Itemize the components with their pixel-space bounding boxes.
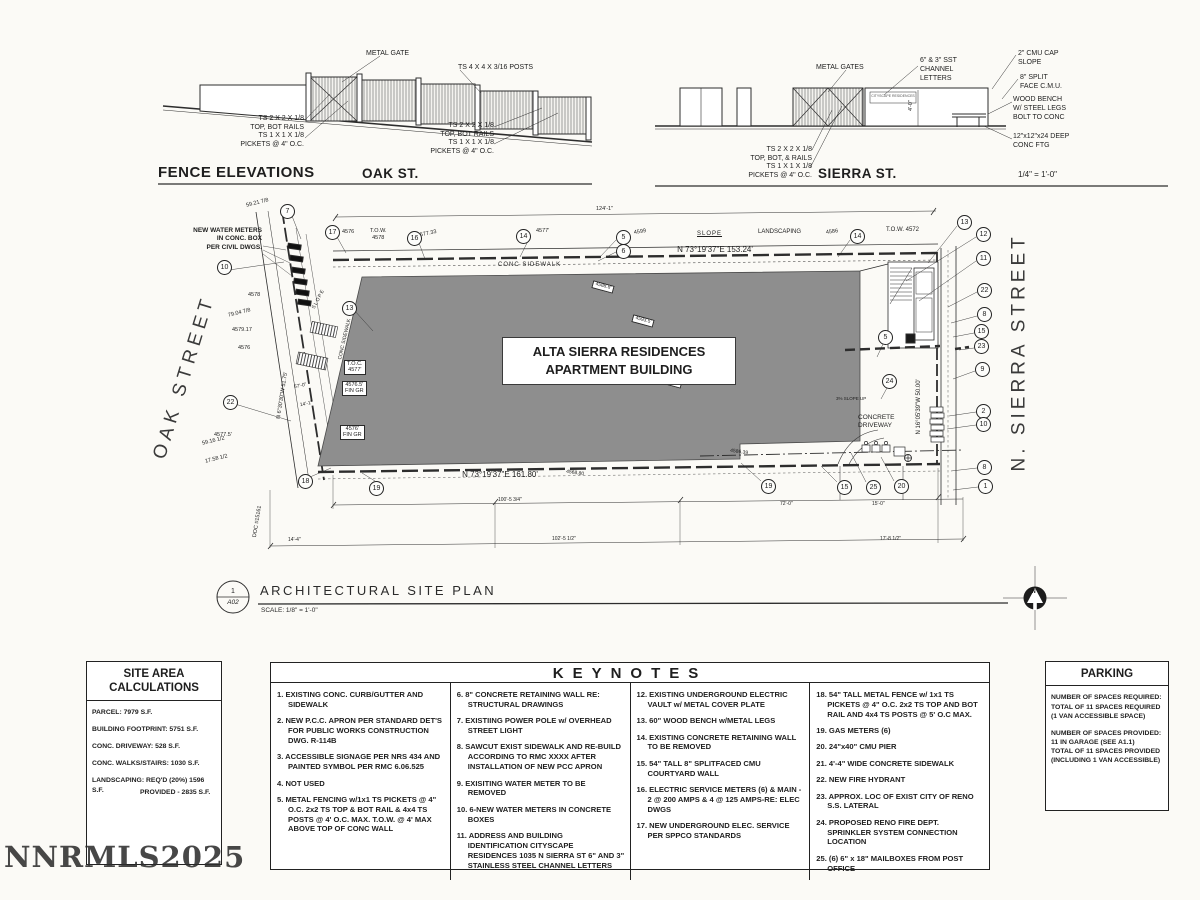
keynote-item: 7. EXISTIING POWER POLE w/ OVERHEAD STRE… (457, 716, 625, 736)
oak-rails-left-label: TS 2 X 2 X 1/8 TOP, BOT RAILS (222, 114, 304, 132)
north-letter: N (1032, 589, 1036, 596)
keynote-item: 6. 8" CONCRETE RETAINING WALL RE: STRUCT… (457, 690, 625, 710)
keynote-item: 5. METAL FENCING w/1x1 TS PICKETS @ 4" O… (277, 795, 445, 834)
keynote-item: 3. ACCESSIBLE SIGNAGE PER NRS 434 AND PA… (277, 752, 445, 772)
keynote-bubble: 16 (407, 231, 422, 246)
parking-title: PARKING (1046, 662, 1168, 686)
water-meters-note: NEW WATER METERS IN CONC. BOX PER CIVIL … (166, 227, 262, 252)
keynote-item: 18. 54" TALL METAL FENCE w/ 1x1 TS PICKE… (816, 690, 984, 720)
keynote-bubble: 12 (976, 227, 991, 242)
keynote-item: 16. ELECTRIC SERVICE METERS (6) & MAIN -… (637, 785, 805, 815)
keynote-item: 11. ADDRESS AND BUILDING IDENTIFICATION … (457, 831, 625, 870)
parking-required: NUMBER OF SPACES REQUIRED: TOTAL OF 11 S… (1051, 693, 1163, 721)
toc-box: T.O.C. 4577' (344, 360, 366, 375)
bearing-top: N 73°19'37"E 153.24' (650, 245, 780, 255)
dim-72: 72'-0" (780, 501, 793, 508)
site-area-parcel: PARCEL: 7979 S.F. (92, 708, 216, 717)
keynote-item: 2. NEW P.C.C. APRON PER STANDARD DET'S F… (277, 716, 445, 746)
keynotes-column-3: 12. EXISTING UNDERGROUND ELECTRIC VAULT … (631, 683, 811, 880)
keynote-item: 17. NEW UNDERGROUND ELEC. SERVICE PER SP… (637, 821, 805, 841)
keynote-bubble: 1 (978, 479, 993, 494)
oak-pickets-left-label: TS 1 X 1 X 1/8 PICKETS @ 4" O.C. (212, 131, 304, 149)
keynote-bubble: 15 (837, 480, 852, 495)
sheet-reference: A02 (222, 599, 244, 607)
elev-457917: 4579.17 (232, 327, 252, 334)
sierra-metal-gates-label: METAL GATES (816, 63, 864, 72)
elev-4578: 4578 (248, 292, 260, 299)
keynote-item: 15. 54" TALL 8" SPLITFACED CMU COURTYARD… (637, 759, 805, 779)
keynotes-column-2: 6. 8" CONCRETE RETAINING WALL RE: STRUCT… (451, 683, 631, 880)
sierra-channel-letters-label: 6" & 3" SST CHANNEL LETTERS (920, 56, 957, 83)
dim-100: 100'-5 3/4" (498, 497, 522, 504)
keynote-item: 20. 24"x40" CMU PIER (816, 742, 984, 752)
keynote-bubble: 7 (280, 204, 295, 219)
oak-posts-label: TS 4 X 4 X 3/16 POSTS (458, 63, 533, 72)
keynote-item: 21. 4'-4" WIDE CONCRETE SIDEWALK (816, 759, 984, 769)
keynote-item: 23. APPROX. LOC OF EXIST CITY OF RENO S.… (816, 792, 984, 812)
keynote-bubble: 14 (516, 229, 531, 244)
drawing-sheet: METAL GATE TS 4 X 4 X 3/16 POSTS TS 2 X … (0, 0, 1200, 900)
keynote-bubble: 5 (616, 230, 631, 245)
keynote-item: 1. EXISTING CONC. CURB/GUTTER AND SIDEWA… (277, 690, 445, 710)
slope-up-label: 3% SLOPE UP (836, 396, 866, 402)
keynote-bubble: 22 (977, 283, 992, 298)
detail-number: 1 (226, 587, 240, 596)
site-area-footprint: BUILDING FOOTPRINT: 5751 S.F. (92, 725, 216, 734)
sierra-footing-label: 12"x12"x24 DEEP CONC FTG (1013, 132, 1069, 150)
mls-watermark: NNRMLS2025 (4, 840, 245, 874)
sierra-cmu-cap-label: 2" CMU CAP SLOPE (1018, 49, 1059, 67)
keynote-bubble: 14 (850, 229, 865, 244)
keynote-item: 13. 60" WOOD BENCH w/METAL LEGS (637, 716, 805, 726)
building-type: APARTMENT BUILDING (505, 361, 733, 379)
site-plan-title: ARCHITECTURAL SITE PLAN (260, 583, 496, 598)
dim-15: 15'-0" (872, 501, 885, 508)
elev-4577: 4577' (536, 228, 549, 235)
dim-102: 102'-5 1/2" (552, 536, 576, 543)
keynote-item: 25. (6) 6" x 18" MAILBOXES FROM POST OFF… (816, 854, 984, 874)
landscaping-label: LANDSCAPING (758, 229, 801, 237)
keynote-bubble: 10 (217, 260, 232, 275)
keynote-item: 24. PROPOSED RENO FIRE DEPT. SPRINKLER S… (816, 818, 984, 848)
fin-gr-box-2: 4576' FIN GR (340, 425, 365, 440)
keynote-item: 4. NOT USED (277, 779, 445, 789)
parking-provided: NUMBER OF SPACES PROVIDED: 11 IN GARAGE … (1051, 729, 1163, 766)
conc-sidewalk-label: CONC SIDEWALK (498, 262, 561, 270)
keynote-bubble: 8 (977, 460, 992, 475)
parking-panel: PARKING NUMBER OF SPACES REQUIRED: TOTAL… (1045, 661, 1169, 811)
sierra-split-face-label: 8" SPLIT FACE C.M.U. (1020, 73, 1062, 91)
sierra-sign-text: CITYSCAPE RESIDENCES (869, 94, 917, 99)
keynote-bubble: 13 (957, 215, 972, 230)
dim-17: 17'-8 1/2" (880, 536, 901, 543)
keynote-bubble: 19 (369, 481, 384, 496)
tow-left: T.O.W. 4578 (370, 228, 387, 242)
dim-124: 124'-1" (596, 206, 613, 213)
elev-4576b: 4576 (238, 345, 250, 352)
slope-top-label: SLOPE (697, 231, 722, 239)
keynotes-column-4: 18. 54" TALL METAL FENCE w/ 1x1 TS PICKE… (810, 683, 989, 880)
keynote-bubble: 9 (975, 362, 990, 377)
sierra-rails-label: TS 2 X 2 X 1/8 TOP, BOT, & RAILS (728, 145, 812, 163)
keynote-item: 8. SAWCUT EXIST SIDEWALK AND RE-BUILD AC… (457, 742, 625, 772)
elev-45775: 4577.5' (214, 432, 232, 439)
bearing-right: N 16°05'39"W 50.00' (916, 349, 924, 465)
elev-4576a: 4576 (342, 229, 354, 236)
keynote-bubble: 18 (298, 474, 313, 489)
oak-metal-gate-label: METAL GATE (366, 49, 409, 58)
north-arrow-icon (1003, 566, 1067, 630)
keynote-bubble: 17 (325, 225, 340, 240)
oak-street-title: OAK ST. (362, 166, 419, 181)
sierra-street-name: N. SIERRA STREET (1008, 222, 1033, 482)
fin-gr-box-1: 4576.5' FIN GR (342, 381, 367, 396)
dim-14b: 14'-4" (288, 537, 301, 544)
sierra-bench-label: WOOD BENCH W/ STEEL LEGS BOLT TO CONC (1013, 95, 1066, 122)
keynote-bubble: 19 (761, 479, 776, 494)
keynote-bubble: 25 (866, 480, 881, 495)
site-area-calculations-panel: SITE AREA CALCULATIONS PARCEL: 7979 S.F.… (86, 661, 222, 865)
keynote-bubble: 20 (894, 479, 909, 494)
keynotes-panel: KEYNOTES 1. EXISTING CONC. CURB/GUTTER A… (270, 662, 990, 870)
sierra-height-dim: 4'-0" (908, 100, 915, 111)
bearing-bottom: N 73°19'37"E 161.80' (420, 470, 580, 480)
keynote-bubble: 23 (974, 339, 989, 354)
building-name: ALTA SIERRA RESIDENCES (505, 343, 733, 361)
site-area-title: SITE AREA CALCULATIONS (87, 662, 221, 701)
site-area-walks: CONC. WALKS/STAIRS: 1030 S.F. (92, 759, 216, 768)
keynote-item: 10. 6-NEW WATER METERS IN CONCRETE BOXES (457, 805, 625, 825)
keynote-item: 9. EXISITING WATER METER TO BE REMOVED (457, 779, 625, 799)
mailboxes (930, 407, 944, 442)
keynote-item: 22. NEW FIRE HYDRANT (816, 775, 984, 785)
keynote-bubble: 11 (976, 251, 991, 266)
keynote-bubble: 22 (223, 395, 238, 410)
keynotes-title: KEYNOTES (271, 663, 989, 683)
keynote-item: 14. EXISTING CONCRETE RETAINING WALL TO … (637, 733, 805, 753)
keynote-bubble: 10 (976, 417, 991, 432)
tow-right: T.O.W. 4572 (886, 227, 919, 235)
concrete-driveway-label: CONCRETE DRIVEWAY (858, 414, 894, 431)
keynote-item: 12. EXISTING UNDERGROUND ELECTRIC VAULT … (637, 690, 805, 710)
fence-scale-note: 1/4" = 1'-0" (1018, 170, 1057, 180)
keynote-bubble: 13 (342, 301, 357, 316)
site-plan (217, 208, 1067, 630)
site-area-landscaping-provided: PROVIDED - 2835 S.F. (92, 788, 216, 797)
fire-hydrant-symbol (905, 455, 912, 462)
fence-elevations-title: FENCE ELEVATIONS (158, 164, 315, 181)
site-plan-scale: SCALE: 1/8" = 1'-0" (261, 607, 318, 614)
sierra-pickets-label: TS 1 X 1 X 1/8 PICKETS @ 4" O.C. (716, 162, 812, 180)
keynote-bubble: 24 (882, 374, 897, 389)
keynote-item: 19. GAS METERS (6) (816, 726, 984, 736)
sierra-street-title: SIERRA ST. (818, 166, 897, 181)
oak-rails-right-label: TS 2 X 2 X 1/8 TOP, BOT RAILS (410, 121, 494, 139)
keynote-bubble: 6 (616, 244, 631, 259)
keynote-bubble: 5 (878, 330, 893, 345)
site-area-driveway: CONC. DRIVEWAY: 528 S.F. (92, 742, 216, 751)
keynotes-column-1: 1. EXISTING CONC. CURB/GUTTER AND SIDEWA… (271, 683, 451, 880)
building-label: ALTA SIERRA RESIDENCES APARTMENT BUILDIN… (502, 337, 736, 385)
oak-pickets-right-label: TS 1 X 1 X 1/8 PICKETS @ 4" O.C. (400, 138, 494, 156)
keynote-bubble: 15 (974, 324, 989, 339)
keynote-bubble: 8 (977, 307, 992, 322)
